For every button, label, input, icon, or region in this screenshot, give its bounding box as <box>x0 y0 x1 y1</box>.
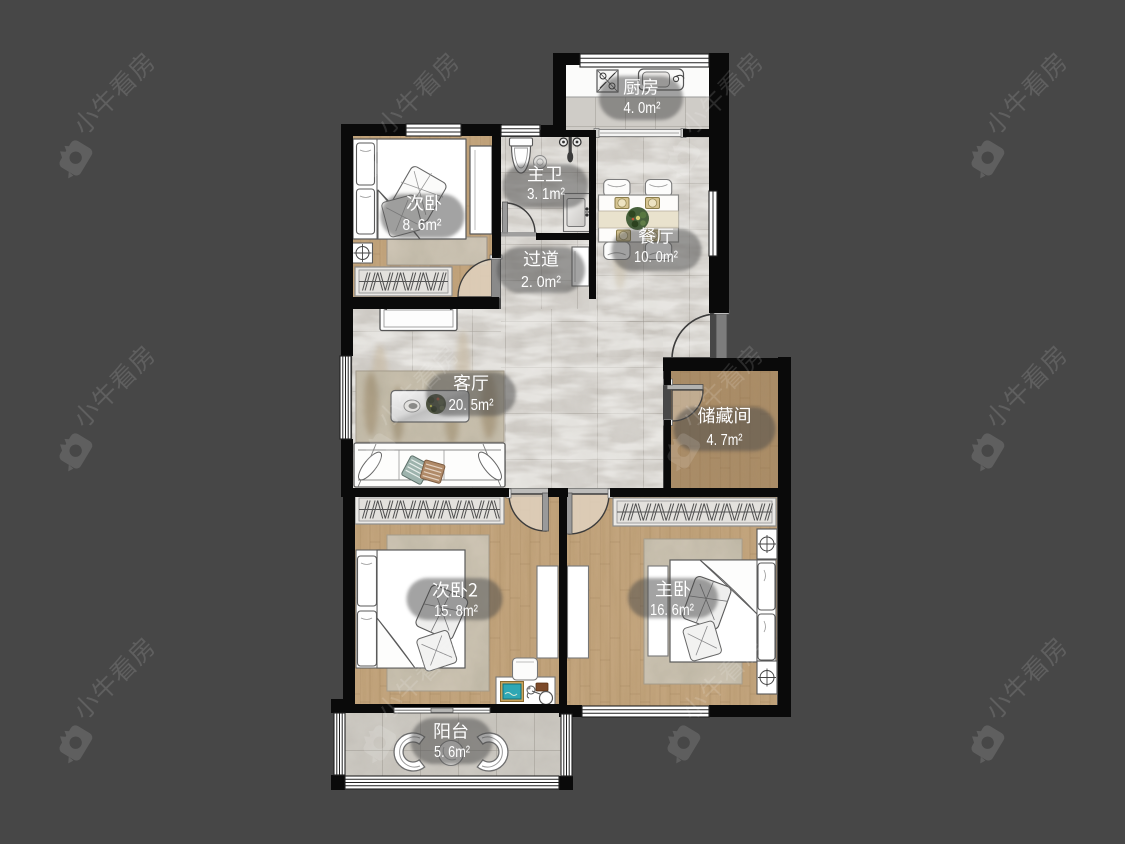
svg-text:16. 6m²: 16. 6m² <box>650 602 695 619</box>
svg-text:4. 0m²: 4. 0m² <box>624 100 662 117</box>
svg-text:15. 8m²: 15. 8m² <box>434 603 479 620</box>
svg-text:2. 0m²: 2. 0m² <box>521 274 562 291</box>
svg-text:5. 6m²: 5. 6m² <box>434 744 471 761</box>
svg-text:3. 1m²: 3. 1m² <box>527 186 566 203</box>
svg-text:4. 7m²: 4. 7m² <box>707 432 744 449</box>
svg-text:8. 6m²: 8. 6m² <box>403 217 443 234</box>
svg-text:20. 5m²: 20. 5m² <box>449 397 495 414</box>
svg-text:10. 0m²: 10. 0m² <box>634 249 679 266</box>
